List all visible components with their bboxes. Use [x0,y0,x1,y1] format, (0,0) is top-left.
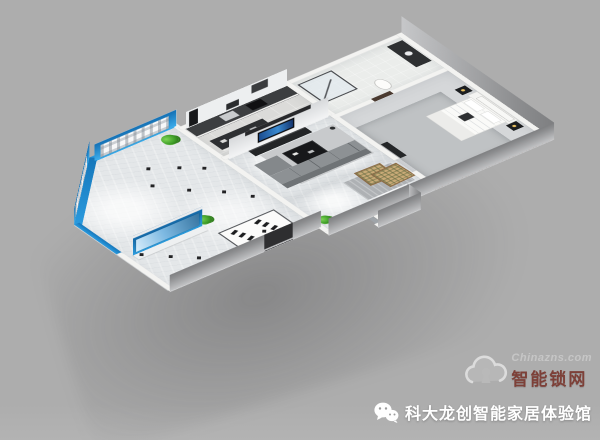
decor [202,167,206,170]
wechat-icon [374,402,399,423]
decor [230,230,238,235]
caption: 科大龙创智能家居体验馆 [374,400,592,424]
decor [187,189,191,192]
watermark-site: Chinazns.com [511,352,592,364]
decor [238,232,246,237]
decor [177,166,181,169]
decor [169,255,173,258]
cloud-keyhole-icon [463,352,509,394]
decor [150,184,154,187]
screenshot-root: Chinazns.com 智能锁网 科大龙创智能家居体验馆 [0,0,600,440]
decor [139,253,143,256]
decor [251,195,255,198]
decor [254,219,262,224]
decor [262,230,266,233]
fridge [189,108,198,127]
decor [379,407,381,409]
decor [386,409,399,420]
decor [197,256,201,259]
decor [393,420,397,423]
decor [292,152,299,156]
bed-throw [458,112,475,121]
decor [262,222,270,227]
decor [385,407,387,409]
decor [307,150,315,154]
watermark-texts: Chinazns.com 智能锁网 [511,352,592,390]
caption-text: 科大龙创智能家居体验馆 [405,400,592,424]
decor [482,368,490,376]
decor [393,413,395,415]
table-lamp [460,89,466,92]
decor [220,139,228,143]
oven [251,79,267,94]
decor [222,190,226,193]
watermark-brand: 智能锁网 [511,365,592,390]
wash-basin [403,50,414,56]
decor [146,167,150,170]
table-lamp [511,124,517,127]
watermark: Chinazns.com 智能锁网 [463,352,592,394]
decor [389,413,391,415]
